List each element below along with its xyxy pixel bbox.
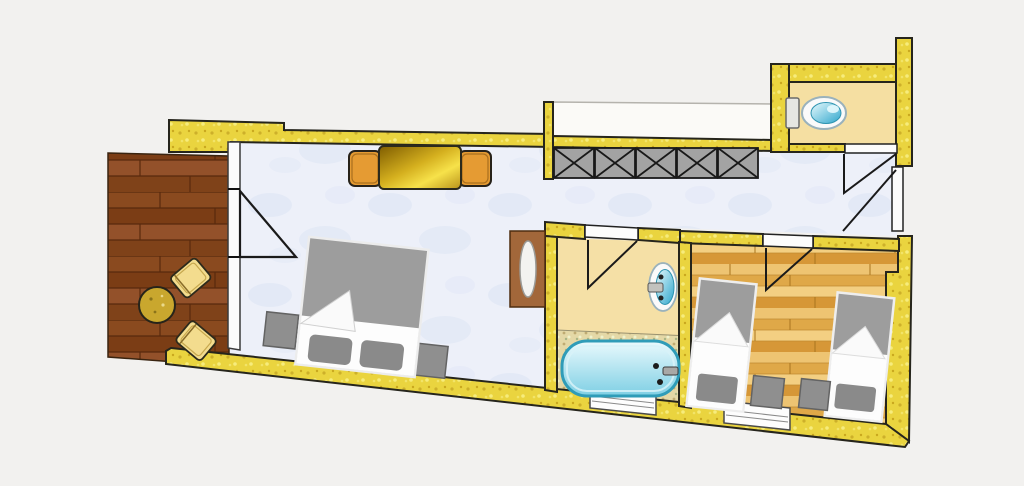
tub-tap-handle bbox=[653, 363, 659, 369]
niche-left-wall bbox=[544, 102, 553, 179]
wc-bottom-wall bbox=[789, 144, 845, 152]
dining-set bbox=[349, 146, 491, 189]
wardrobe-section bbox=[677, 148, 717, 178]
toilet bbox=[786, 97, 846, 129]
wardrobe-section bbox=[554, 148, 594, 178]
bathroom-top-wall-right bbox=[638, 228, 680, 243]
pillow bbox=[832, 382, 878, 414]
wardrobe-section bbox=[636, 148, 676, 178]
floor-plan-canvas bbox=[0, 0, 1024, 486]
dining-chair bbox=[459, 151, 491, 186]
single-bed-2-group bbox=[825, 292, 895, 421]
sink-tap bbox=[648, 283, 663, 292]
sink-tap-handle bbox=[659, 296, 664, 301]
tub-spout bbox=[663, 367, 678, 375]
bedroom-top-wall-right bbox=[813, 236, 899, 251]
pillow bbox=[306, 332, 355, 367]
wardrobe-section bbox=[595, 148, 635, 178]
bathroom-left-wall bbox=[545, 236, 557, 392]
dining-table bbox=[379, 146, 461, 189]
wc-door-leaf bbox=[845, 144, 897, 153]
dining-chair bbox=[349, 151, 381, 186]
pillow bbox=[694, 372, 740, 406]
right-pillar-wall bbox=[896, 38, 912, 166]
bathtub-body bbox=[562, 341, 679, 396]
wardrobe-section bbox=[718, 148, 758, 178]
sink bbox=[648, 263, 677, 311]
balcony-table bbox=[139, 287, 175, 323]
wardrobe bbox=[554, 148, 758, 178]
balcony-glass-wall bbox=[228, 142, 240, 350]
toilet-highlight bbox=[827, 105, 839, 113]
nightstand bbox=[799, 379, 831, 411]
sink-tap-handle bbox=[659, 275, 664, 280]
floor-plan-drawing bbox=[0, 0, 1024, 486]
entrance-door-leaf bbox=[892, 167, 903, 231]
cabinet-handle bbox=[520, 241, 536, 297]
wc-top-wall bbox=[789, 64, 898, 82]
toilet-bowl-water bbox=[811, 103, 841, 124]
bedroom-top-wall-left bbox=[680, 231, 763, 246]
niche-area bbox=[552, 102, 773, 141]
single-bed-1-group bbox=[686, 278, 756, 411]
nightstand bbox=[263, 312, 298, 349]
cabinet bbox=[510, 231, 545, 307]
bedroom-door-leaf bbox=[763, 234, 813, 248]
pillow bbox=[357, 338, 406, 373]
balcony-deck bbox=[108, 153, 229, 366]
bathtub bbox=[562, 341, 679, 396]
nightstand bbox=[751, 376, 785, 409]
tub-tap-handle bbox=[657, 379, 663, 385]
toilet-tank bbox=[786, 98, 799, 128]
bathroom-door-leaf bbox=[585, 225, 638, 240]
